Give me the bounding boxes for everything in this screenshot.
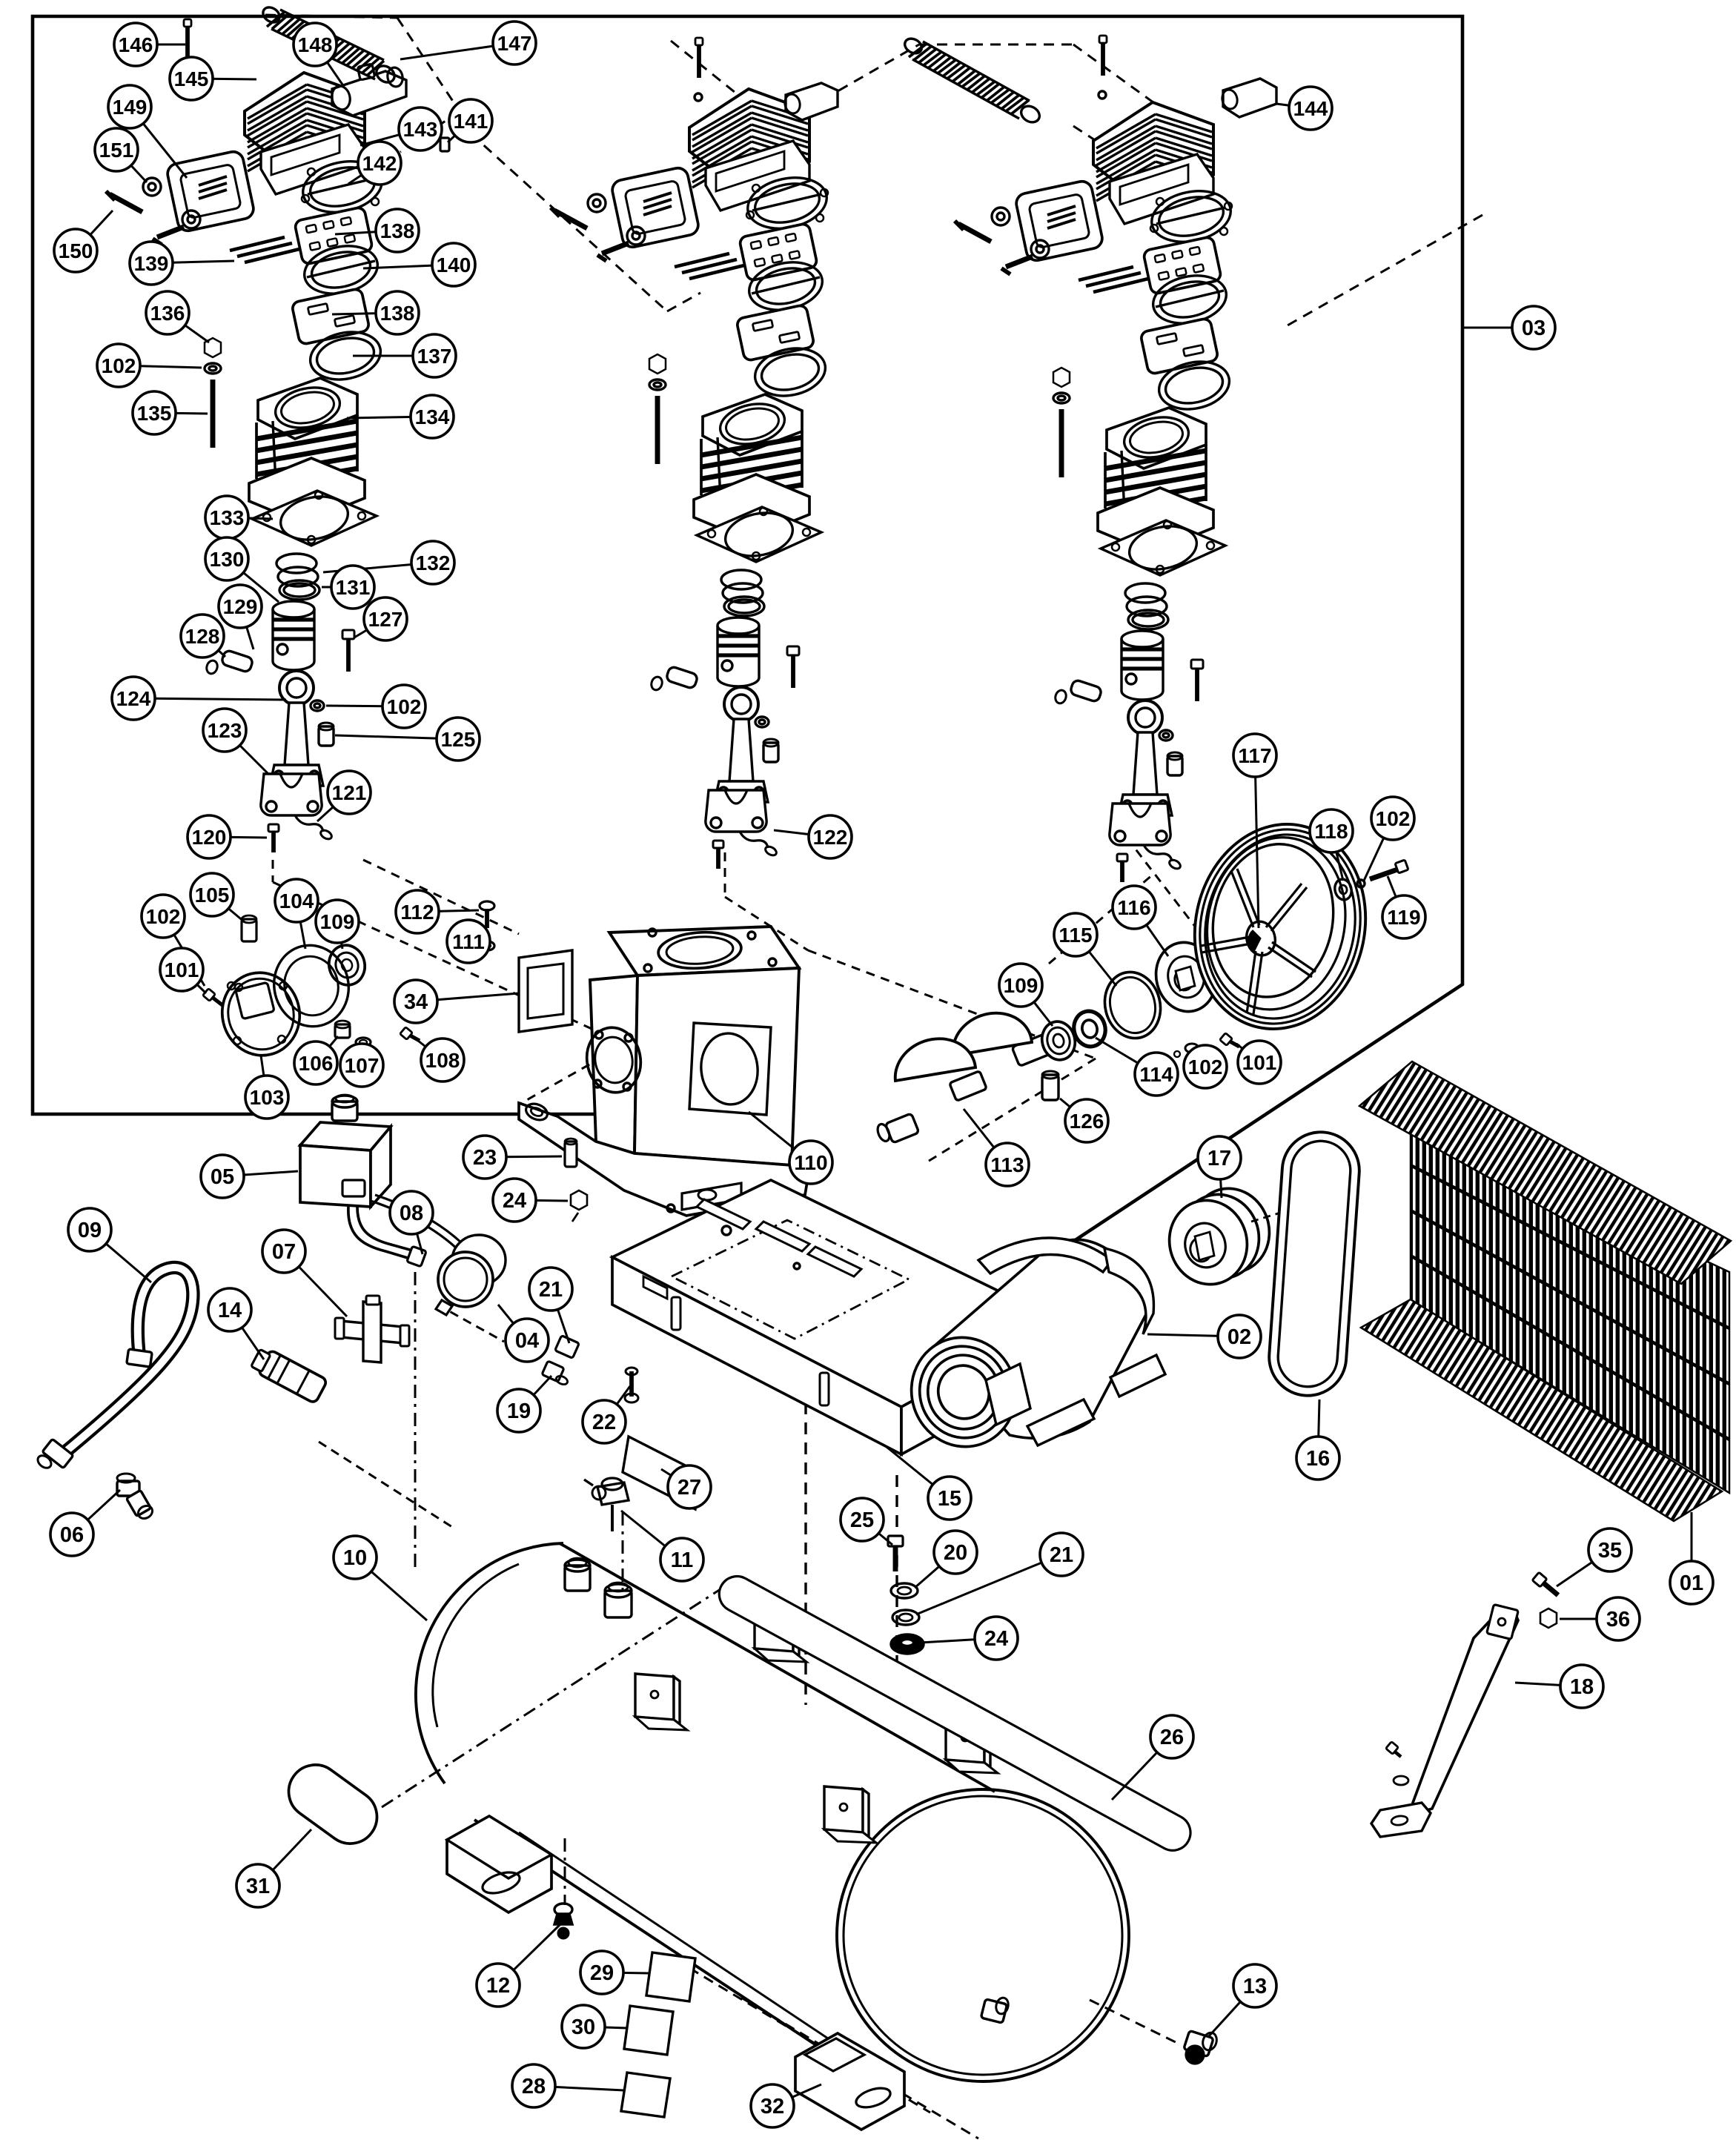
svg-text:12: 12 [486,1974,510,1998]
svg-text:107: 107 [345,1054,380,1077]
svg-text:147: 147 [497,32,532,55]
svg-text:02: 02 [1228,1325,1251,1349]
svg-text:139: 139 [134,252,169,275]
svg-text:130: 130 [210,548,245,571]
svg-text:08: 08 [400,1202,423,1225]
svg-text:101: 101 [1242,1051,1277,1074]
svg-text:119: 119 [1387,906,1420,929]
svg-text:127: 127 [368,608,403,631]
svg-text:101: 101 [165,958,199,981]
svg-text:30: 30 [572,2015,595,2039]
svg-text:07: 07 [272,1240,296,1264]
svg-text:138: 138 [380,219,415,242]
svg-text:115: 115 [1059,924,1092,947]
svg-text:35: 35 [1598,1539,1622,1563]
svg-text:125: 125 [441,728,476,751]
svg-text:31: 31 [246,1875,270,1898]
svg-text:145: 145 [174,67,209,90]
svg-text:117: 117 [1238,744,1271,767]
svg-text:03: 03 [1522,317,1545,340]
svg-text:120: 120 [192,826,227,849]
svg-text:116: 116 [1117,896,1150,919]
svg-text:118: 118 [1314,820,1348,843]
svg-text:05: 05 [211,1165,234,1189]
svg-text:146: 146 [119,33,153,56]
svg-text:29: 29 [590,1961,614,1985]
svg-text:102: 102 [146,905,181,928]
svg-text:143: 143 [403,118,438,141]
svg-text:106: 106 [299,1052,334,1075]
svg-text:150: 150 [59,239,93,262]
svg-text:123: 123 [208,719,242,742]
svg-text:141: 141 [454,110,488,133]
svg-text:21: 21 [1050,1543,1073,1567]
svg-text:124: 124 [116,687,151,710]
svg-text:133: 133 [210,506,245,529]
svg-text:13: 13 [1243,1975,1267,1998]
svg-text:126: 126 [1070,1110,1104,1133]
svg-text:110: 110 [794,1151,827,1174]
svg-text:04: 04 [515,1329,539,1353]
svg-text:09: 09 [78,1219,102,1242]
svg-text:111: 111 [452,930,485,953]
svg-text:148: 148 [298,33,333,56]
svg-text:14: 14 [218,1299,242,1322]
svg-text:102: 102 [387,695,422,718]
svg-text:102: 102 [1376,807,1411,830]
svg-text:140: 140 [437,254,471,276]
svg-text:23: 23 [473,1146,497,1170]
svg-text:15: 15 [938,1487,961,1511]
svg-text:105: 105 [195,884,230,907]
svg-text:102: 102 [102,354,136,377]
svg-text:32: 32 [761,2095,784,2119]
svg-text:142: 142 [362,152,397,175]
svg-text:121: 121 [332,781,367,804]
svg-text:128: 128 [185,625,220,648]
svg-text:22: 22 [592,1411,616,1434]
svg-text:11: 11 [671,1548,694,1572]
svg-text:134: 134 [415,405,450,428]
svg-text:24: 24 [984,1627,1008,1651]
svg-text:102: 102 [1188,1056,1223,1079]
svg-text:131: 131 [336,576,371,599]
svg-text:18: 18 [1570,1675,1594,1699]
svg-text:112: 112 [400,901,434,924]
svg-text:17: 17 [1207,1147,1231,1170]
svg-text:25: 25 [850,1508,874,1532]
svg-text:104: 104 [279,890,314,912]
svg-text:136: 136 [150,302,185,325]
svg-text:36: 36 [1606,1608,1630,1631]
svg-text:135: 135 [137,402,172,425]
svg-text:144: 144 [1293,97,1328,120]
svg-text:137: 137 [417,345,452,368]
svg-text:103: 103 [250,1086,285,1109]
svg-text:27: 27 [677,1476,701,1500]
svg-text:122: 122 [813,826,848,849]
svg-text:138: 138 [380,302,415,325]
svg-text:19: 19 [507,1399,531,1423]
svg-text:114: 114 [1139,1063,1173,1086]
svg-text:28: 28 [522,2075,546,2098]
svg-text:132: 132 [416,551,451,574]
svg-text:01: 01 [1680,1571,1703,1595]
svg-text:109: 109 [1004,974,1038,997]
svg-text:26: 26 [1160,1726,1184,1749]
svg-text:129: 129 [223,595,258,618]
svg-text:24: 24 [503,1189,526,1213]
svg-text:20: 20 [944,1541,967,1565]
svg-text:151: 151 [99,139,134,162]
svg-text:109: 109 [320,910,355,933]
svg-text:113: 113 [990,1153,1024,1176]
svg-text:10: 10 [343,1546,367,1570]
svg-text:21: 21 [539,1278,563,1302]
svg-text:34: 34 [404,990,428,1014]
svg-text:108: 108 [425,1049,460,1072]
svg-text:16: 16 [1306,1447,1330,1471]
svg-text:149: 149 [113,96,148,119]
svg-text:06: 06 [60,1523,84,1547]
